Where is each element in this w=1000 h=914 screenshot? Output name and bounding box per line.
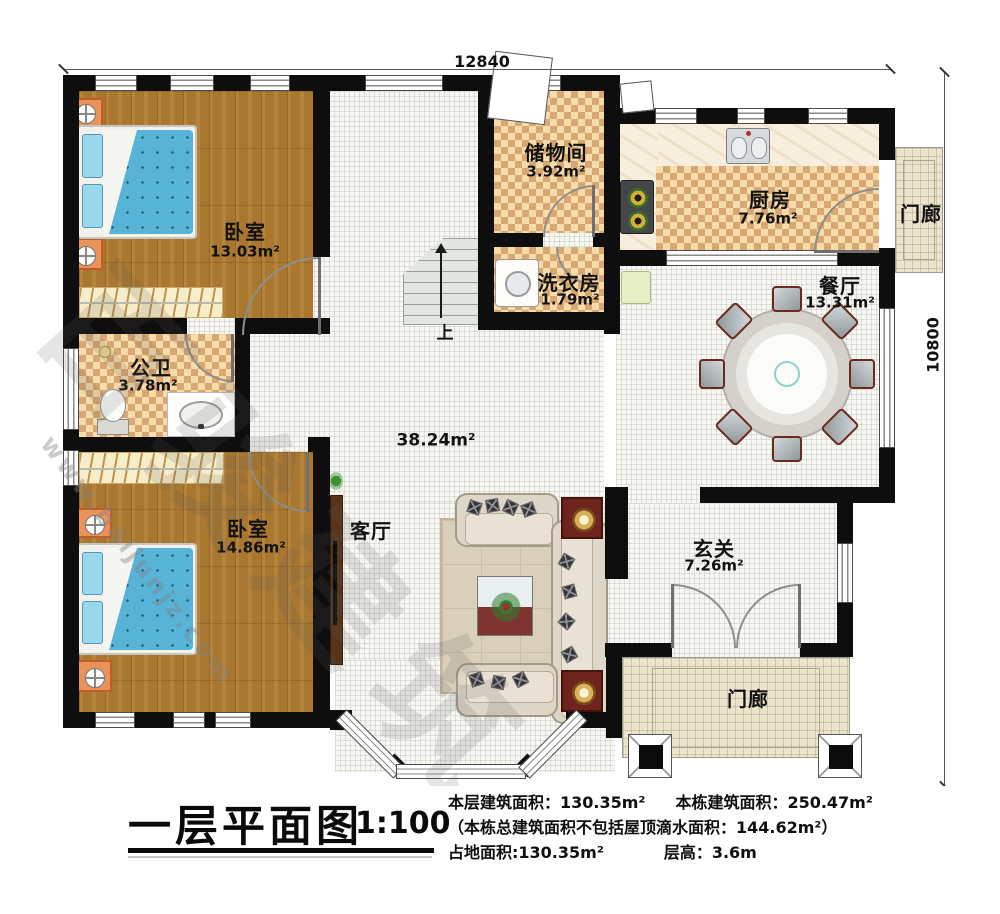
dining-chair (849, 359, 875, 389)
burner-icon (628, 211, 648, 231)
washing-machine (495, 259, 539, 307)
cushion (491, 675, 506, 690)
chimney-flue (620, 80, 655, 113)
sink-basin (751, 137, 767, 159)
door-leaf (814, 250, 879, 253)
room-area-storage: 3.92m² (526, 165, 585, 180)
side-table (561, 670, 603, 712)
window (95, 75, 137, 91)
dimension-line-right (944, 72, 945, 786)
pillow (82, 184, 103, 228)
door-leaf (671, 584, 674, 648)
lamp-icon (76, 246, 96, 266)
room-label-kitchen: 厨房 (749, 190, 791, 210)
bay-window (396, 764, 526, 779)
porch-column (628, 734, 672, 778)
plan-title: 一层平面图 (128, 792, 363, 854)
plant-icon (329, 472, 343, 490)
door-leaf (306, 452, 309, 512)
stairs-direction-arrow (440, 252, 442, 318)
wall (313, 91, 330, 257)
title-block: 一层平面图 1:100 本层建筑面积：130.35m²本栋建筑面积：250.47… (0, 786, 1000, 914)
dining-chair (772, 286, 802, 312)
info-line-1: 本层建筑面积：130.35m²本栋建筑面积：250.47m² (448, 790, 873, 815)
info-line-2: （本栋总建筑面积不包括屋顶滴水面积：144.62m²） (448, 815, 873, 840)
window (95, 712, 135, 728)
wall (63, 318, 187, 334)
window (215, 712, 251, 728)
wall (63, 437, 250, 452)
dimension-right-value: 10800 (924, 317, 943, 373)
wardrobe-rod (80, 468, 223, 470)
dining-chair (699, 359, 725, 389)
wall (700, 487, 895, 503)
wall (313, 437, 330, 728)
stove (620, 180, 654, 234)
room-label-bathroom: 公卫 (130, 358, 172, 378)
door-leaf (798, 584, 801, 648)
plan-info: 本层建筑面积：130.35m²本栋建筑面积：250.47m² （本栋总建筑面积不… (448, 790, 873, 865)
pillow (82, 552, 103, 595)
nightstand (74, 660, 112, 692)
sofa-bottom (456, 663, 558, 717)
pillow (82, 134, 103, 178)
title-underline (128, 848, 434, 853)
window (737, 108, 765, 124)
faucet-icon (746, 131, 751, 136)
footprint-text: 占地面积:130.35m² (448, 843, 604, 862)
room-area-bedroom2: 14.86m² (216, 541, 286, 556)
door-leaf (318, 257, 321, 335)
wall (605, 487, 628, 579)
dimension-top-value: 12840 (454, 52, 510, 71)
burner-icon (628, 188, 648, 208)
bed (77, 125, 197, 239)
faucet-icon (198, 424, 204, 429)
wall (837, 603, 853, 657)
ceiling-lamp-icon (99, 346, 111, 358)
wall (879, 124, 895, 160)
room-area-laundry: 1.79m² (540, 293, 599, 308)
wall (494, 233, 543, 247)
wardrobe (79, 452, 224, 484)
dining-table-center (774, 361, 800, 387)
window (808, 108, 848, 124)
plan-scale: 1:100 (355, 806, 451, 841)
door-leaf (592, 185, 595, 237)
building-area-text: 本栋建筑面积：250.47m² (675, 793, 872, 812)
wall (235, 318, 250, 450)
plant-box (621, 271, 651, 304)
room-area-foyer: 7.26m² (684, 559, 743, 574)
window (655, 108, 697, 124)
room-area-kitchen: 7.76m² (738, 212, 797, 227)
room-area-dining: 13.31m² (805, 296, 875, 311)
window (837, 543, 853, 603)
room-label-porch-right: 门廊 (900, 204, 942, 224)
door-leaf (231, 334, 234, 382)
stairs-up-label: 上 (437, 326, 454, 343)
room-area-bathroom: 3.78m² (118, 379, 177, 394)
wall (879, 248, 895, 310)
pillow (82, 601, 103, 644)
window (63, 348, 79, 430)
lamp-icon (85, 668, 105, 688)
wall (478, 312, 620, 330)
floor-area-text: 本层建筑面积：130.35m² (448, 793, 645, 812)
window (879, 308, 895, 448)
room-label-porch-bottom: 门廊 (727, 689, 769, 709)
room-area-bedroom1: 13.03m² (210, 245, 280, 260)
tv (333, 541, 337, 625)
side-table (561, 497, 603, 539)
kitchen-sink (726, 128, 770, 164)
sink-basin (731, 137, 747, 159)
sink-counter (167, 392, 235, 437)
lamp-icon (572, 508, 596, 532)
wall (837, 503, 853, 543)
column-core (829, 745, 853, 769)
wardrobe (79, 287, 223, 318)
room-label-bedroom2: 卧室 (227, 519, 269, 539)
nightstand (74, 508, 112, 538)
lamp-icon (85, 515, 105, 535)
window-passthrough (666, 250, 838, 266)
window (173, 712, 205, 728)
wall (616, 250, 668, 266)
room-label-storage: 储物间 (525, 143, 588, 163)
stairs-arrowhead-icon (435, 243, 447, 253)
lamp-icon (572, 681, 596, 705)
lamp-icon (76, 104, 96, 124)
bed (77, 543, 197, 655)
floor-plan: 卧室 13.03m² 储物间 3.92m² 厨房 7.76m² 门廊 餐厅 13… (0, 0, 1000, 914)
title-underline-shadow (128, 856, 432, 858)
room-label-bedroom1: 卧室 (224, 222, 266, 242)
info-line-3: 占地面积:130.35m²层高：3.6m (448, 840, 873, 865)
washer-drum-icon (505, 271, 531, 297)
sofa-seat (465, 513, 553, 545)
porch-column (818, 734, 862, 778)
window (250, 75, 290, 91)
room-label-living: 客厅 (350, 521, 392, 541)
plant-pot (502, 603, 510, 611)
window (365, 75, 443, 91)
wall (605, 643, 672, 657)
dining-chair (772, 436, 802, 462)
column-core (639, 745, 663, 769)
wardrobe-rod (80, 302, 222, 304)
window (170, 75, 214, 91)
note-text: （本栋总建筑面积不包括屋顶滴水面积：144.62m²） (448, 818, 837, 837)
area-label-open: 38.24m² (397, 433, 476, 450)
storey-height-text: 层高：3.6m (664, 843, 757, 862)
cushion (485, 498, 500, 513)
window (63, 450, 79, 486)
